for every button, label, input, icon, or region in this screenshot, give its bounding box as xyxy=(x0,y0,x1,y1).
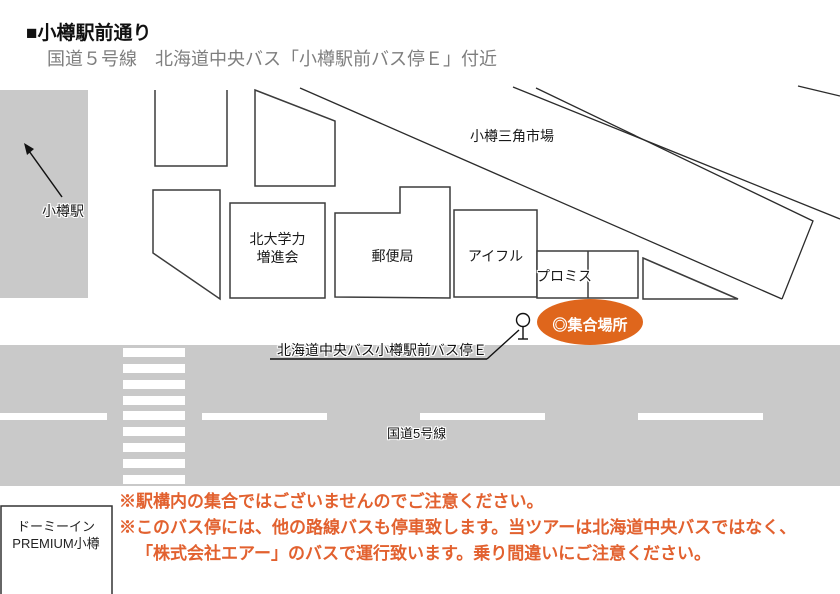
crosswalk xyxy=(123,348,185,484)
cram-school-label: 北大学力 増進会 xyxy=(230,230,325,266)
post-office-label: 郵便局 xyxy=(335,247,450,265)
building-triangle xyxy=(643,258,738,299)
aiful-label: アイフル xyxy=(454,247,537,265)
page-subtitle: 国道５号線 北海道中央バス「小樽駅前バス停Ｅ」付近 xyxy=(47,45,497,71)
station-label: 小樽駅 xyxy=(42,201,84,221)
crosswalk-stripe xyxy=(123,396,185,405)
center-line-dash xyxy=(420,413,545,420)
center-line-dash xyxy=(638,413,763,420)
promise-label: プロミス xyxy=(536,266,592,286)
note-line-2: ※このバス停には、他の路線バスも停車致します。当ツアーは北海道中央バスではなく、 xyxy=(119,513,796,538)
building-block-b xyxy=(255,90,335,186)
building-block-a xyxy=(155,90,227,166)
page-title: ■小樽駅前通り xyxy=(26,18,151,45)
diagonal-street-line-outer xyxy=(513,87,840,219)
bus-stop-sign-icon xyxy=(517,314,530,327)
crosswalk-stripe xyxy=(123,411,185,420)
corner-street-line xyxy=(798,86,840,96)
crosswalk-stripe xyxy=(123,459,185,468)
crosswalk-stripe xyxy=(123,380,185,389)
building-block-c xyxy=(153,190,220,299)
center-line-dash xyxy=(202,413,327,420)
bus-stop-label: 北海道中央バス小樽駅前バス停Ｅ xyxy=(277,340,487,360)
crosswalk-stripe xyxy=(123,427,185,436)
station-road-band xyxy=(0,90,88,298)
meeting-point-label: ◎集合場所 xyxy=(538,314,642,335)
hotel-label-line1: ドーミーイン xyxy=(0,518,112,535)
note-line-1: ※駅構内の集合ではございませんのでご注意ください。 xyxy=(119,487,544,512)
crosswalk-stripe xyxy=(123,348,185,357)
hotel-label-line2: PREMIUM小樽 xyxy=(0,535,112,552)
market-label: 小樽三角市場 xyxy=(470,126,554,146)
access-map-page: ■小樽駅前通り 国道５号線 北海道中央バス「小樽駅前バス停Ｅ」付近 小樽駅 小樽… xyxy=(0,0,840,594)
route5-label: 国道5号線 xyxy=(387,423,446,442)
crosswalk-stripe xyxy=(123,475,185,484)
cram-school-label-line2: 増進会 xyxy=(230,248,325,266)
crosswalk-stripe xyxy=(123,443,185,452)
building-post-office xyxy=(335,187,450,298)
center-line-dash xyxy=(0,413,107,420)
note-line-3: 「株式会社エアー」のバスで運行致います。乗り間違いにご注意ください。 xyxy=(136,539,711,564)
crosswalk-stripe xyxy=(123,364,185,373)
cram-school-label-line1: 北大学力 xyxy=(230,230,325,248)
